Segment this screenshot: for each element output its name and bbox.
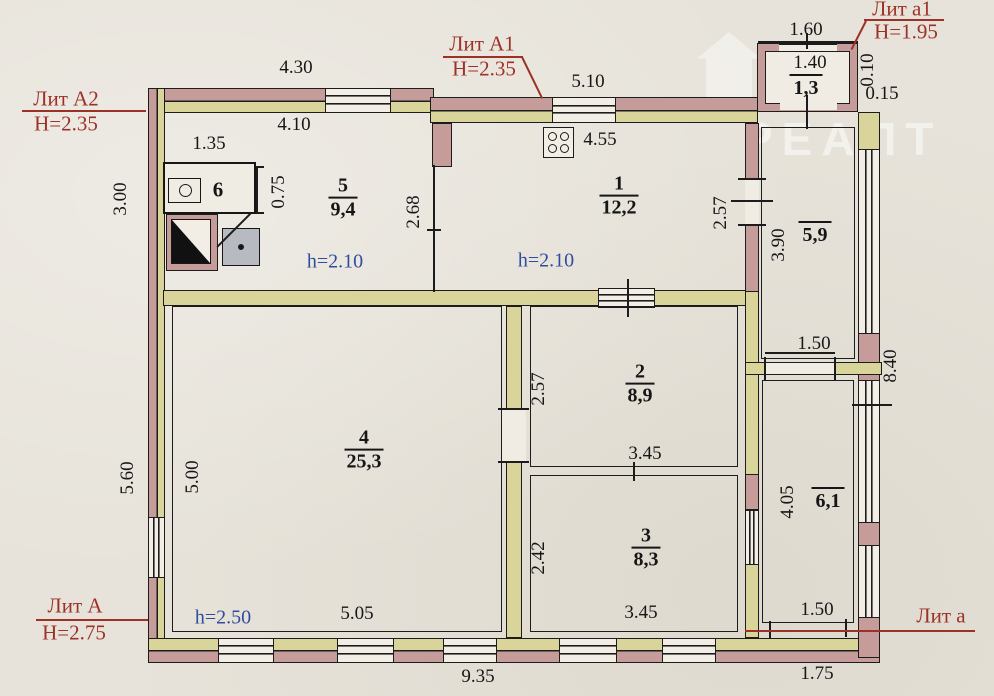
litera-a-label: Лит А: [47, 594, 102, 619]
tick-8-40: [852, 404, 892, 406]
dimline-1-60: [758, 41, 858, 43]
dim-9-35: 9.35: [461, 666, 494, 688]
area-label-veranda-room: 6,1: [812, 487, 845, 513]
room-label-4: 4 25,3: [345, 427, 384, 474]
door-room1-corridor: [745, 179, 759, 225]
dim-4-55: 4.55: [583, 129, 616, 151]
dim-5-05: 5.05: [340, 603, 373, 625]
door-tick-bottom: [498, 461, 529, 463]
dim-8-40: 8.40: [880, 349, 902, 382]
porch-top-opening: [779, 44, 837, 52]
wall-right-segment-bottom: [858, 617, 880, 658]
dim-3-45-room3: 3.45: [624, 602, 657, 624]
furnace-icon: [166, 214, 218, 271]
stove-burner-icon: [560, 132, 569, 141]
stove-burner-icon: [548, 144, 557, 153]
window-top-litA1: [552, 97, 616, 123]
tick-door-1-2: [627, 279, 629, 317]
stove-burner-icon: [548, 132, 557, 141]
door-corridor-room61: [765, 363, 835, 374]
height-h250: h=2.50: [195, 607, 251, 630]
tick-1-50b-right: [845, 619, 847, 637]
litera-a-height: Н=2.75: [42, 621, 106, 646]
wall-right-veranda-glazing: [858, 112, 880, 658]
dim-4-10: 4.10: [277, 114, 310, 136]
partition-room4-rooms23: [506, 306, 522, 638]
litera-a2-label: Лит А2: [33, 87, 99, 112]
litera-a1-label: Лит А1: [449, 32, 515, 57]
stove-burner-icon: [560, 144, 569, 153]
window-bottom-3: [443, 638, 497, 663]
litera-a1s-leader: [851, 21, 867, 50]
dim-2-68: 2.68: [403, 195, 425, 228]
sink-icon: [222, 228, 260, 266]
dim-2-57-room2: 2.57: [528, 372, 550, 405]
dim-0-75: 0.75: [268, 175, 290, 208]
window-left-wall: [148, 517, 165, 578]
chimney-block: [432, 123, 452, 167]
tick-2-68: [427, 229, 441, 231]
sink-drain: [238, 244, 244, 250]
room-label-2: 2 8,9: [626, 361, 655, 408]
dim-2-42: 2.42: [528, 541, 550, 574]
litera-a1s-height: Н=1.95: [874, 20, 938, 45]
area-label-corridor: 5,9: [799, 221, 832, 247]
dim-1-60: 1.60: [789, 19, 822, 41]
dim-1-35: 1.35: [192, 133, 225, 155]
wall-top-litA2: [148, 88, 434, 113]
dim-1-50-veranda: 1.50: [800, 599, 833, 621]
dim-1-40: 1.40: [793, 52, 826, 74]
door150-tick-right: [834, 357, 836, 380]
dim-4-05: 4.05: [777, 485, 799, 518]
dim-3-00: 3.00: [110, 182, 132, 215]
door-tick-top: [498, 408, 529, 410]
wall-veranda-left-pink-top: [745, 123, 759, 179]
dim-1-75: 1.75: [800, 663, 833, 685]
area-label-porch: 1,3: [790, 74, 823, 100]
wall-main-divider: [163, 290, 758, 306]
dim-2-57-room1: 2.57: [710, 196, 732, 229]
tick-corridor-door: [731, 200, 773, 202]
sink-diagonal: [216, 213, 250, 247]
window-bottom-1: [218, 638, 274, 663]
furnace-triangle: [172, 220, 210, 263]
dim-5-00: 5.00: [182, 460, 204, 493]
window-room3-veranda: [745, 510, 759, 565]
dim-4-30: 4.30: [279, 57, 312, 79]
floor-plan: РЕАЛТ: [0, 0, 994, 696]
height-h210-left: h=2.10: [307, 251, 363, 274]
dim-3-90: 3.90: [768, 228, 790, 261]
room-label-3: 3 8,3: [632, 525, 661, 572]
wall-veranda-left-pink-low: [745, 474, 759, 510]
window-bottom-4: [559, 638, 617, 663]
litera-a1-height: Н=2.35: [452, 57, 516, 82]
dim-1-50-corridor: 1.50: [797, 333, 830, 355]
window-bottom-2: [337, 638, 394, 663]
door-corridor-tick1: [738, 178, 766, 180]
dim-0-10: 0.10: [857, 53, 879, 86]
room-label-6: 6: [213, 178, 224, 203]
tick-porch-door: [806, 95, 808, 129]
height-h210-right: h=2.10: [518, 250, 574, 273]
toilet-bowl-icon: [179, 184, 192, 197]
litera-as-leader: [745, 630, 975, 632]
stove-icon: [543, 127, 574, 158]
litera-a1-leader: [521, 57, 543, 99]
door-room4-room2: [502, 409, 526, 463]
room4-inner-outline: [172, 306, 502, 632]
dim-5-60: 5.60: [117, 461, 139, 494]
window-bottom-5: [662, 638, 716, 663]
bracket-0-75: [256, 167, 258, 214]
dim-3-45-room2: 3.45: [628, 443, 661, 465]
dim-5-10: 5.10: [571, 71, 604, 93]
wall-veranda-left-pink-mid: [745, 225, 759, 292]
wall-right-segment-mid2: [858, 522, 880, 546]
litera-as-label: Лит а: [916, 604, 965, 629]
window-top-litA2: [325, 88, 391, 113]
watermark-house-icon: [697, 32, 761, 106]
wall-right-segment-top: [858, 112, 880, 150]
room-label-5: 5 9,4: [329, 175, 358, 222]
litera-a2-height: Н=2.35: [34, 112, 98, 137]
room-label-1: 1 12,2: [600, 173, 639, 220]
door150-tick-left: [764, 357, 766, 380]
